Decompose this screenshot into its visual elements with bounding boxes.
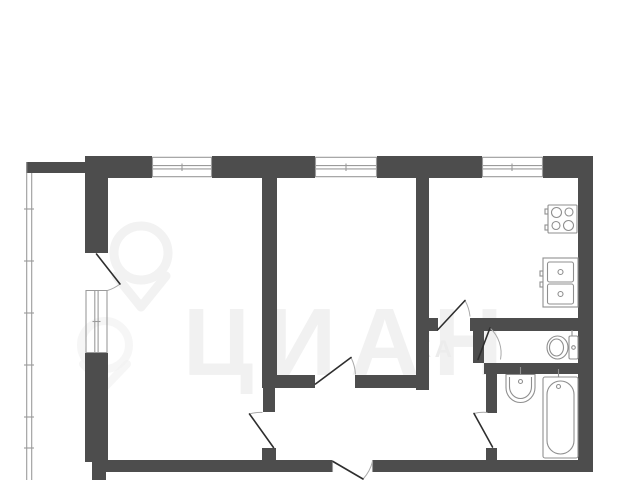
wall-kitchen-divider [416, 178, 429, 390]
stove-icon [545, 205, 577, 233]
walls [26, 156, 593, 480]
balcony-door-leaf [97, 254, 121, 284]
wall-left-foot [92, 460, 106, 480]
wall-bedroom-bottom-left [275, 375, 315, 388]
kitchen-door-leaf [438, 301, 465, 330]
wall-kitchen-bottom-stub [429, 318, 438, 331]
bathroom-door-arc [474, 412, 488, 413]
wall-left-upper [85, 156, 108, 253]
window-bedroom [315, 157, 377, 177]
bathtub-icon [543, 369, 578, 458]
bathroom-door-leaf [474, 414, 493, 448]
toilet-icon [547, 330, 578, 359]
wall-bottom-right [373, 460, 593, 472]
door-leaves [97, 254, 493, 479]
balcony-top-wall [26, 162, 90, 173]
wall-hall-post [262, 448, 276, 461]
living-room-door-arc [250, 412, 263, 414]
kitchen-door-arc [465, 301, 470, 317]
window-balcony [86, 290, 107, 353]
floor-plan: ЦИАН КА [0, 0, 631, 480]
window-living-room [152, 157, 212, 177]
toilet-door-arc [490, 328, 501, 360]
living-room-door-leaf [250, 414, 274, 448]
wall-left-lower [85, 353, 108, 462]
bedroom-door-arc [351, 358, 356, 375]
wall-kitchen-bottom [470, 318, 593, 331]
wall-hall-stub [263, 388, 275, 412]
wall-toilet-bottom [484, 363, 593, 374]
wall-bottom-left [105, 460, 332, 472]
kitchen-sink-icon [540, 258, 578, 307]
wall-bathroom-post [486, 448, 497, 461]
floor-plan-drawing [0, 0, 631, 480]
bedroom-door-leaf [316, 358, 352, 385]
entrance-opening [333, 460, 373, 472]
wall-top-2 [212, 156, 315, 178]
wall-bathroom-left [486, 374, 497, 413]
entrance-door-arc [364, 462, 373, 479]
wall-room-divider [262, 178, 277, 388]
wall-top-3 [377, 156, 482, 178]
entrance-door-leaf [333, 462, 363, 480]
fixtures [506, 205, 578, 458]
window-kitchen [482, 157, 543, 177]
balcony-railing [24, 162, 34, 480]
balcony-door-arc [108, 284, 121, 291]
